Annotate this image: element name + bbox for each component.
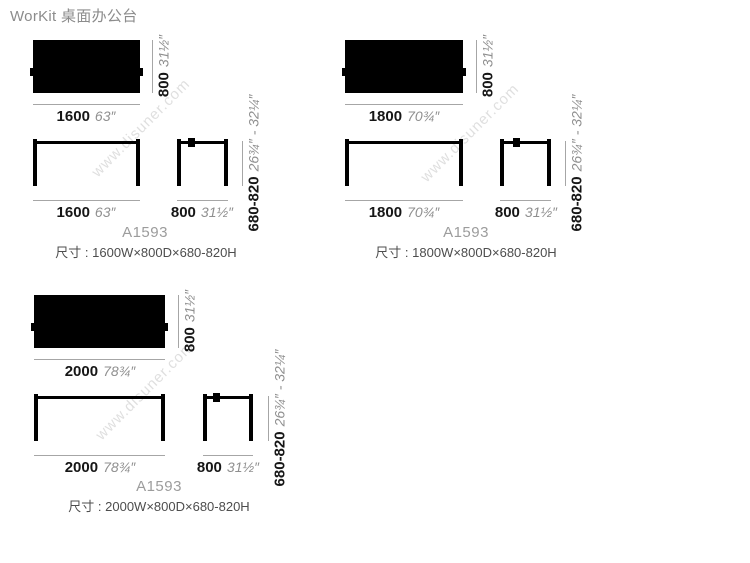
front-view-leg-right — [161, 394, 165, 441]
width-dim-line — [33, 104, 140, 105]
side-depth-dim-line — [500, 200, 551, 201]
height-mm: 680-820 — [246, 176, 263, 231]
width-dim-line — [345, 104, 463, 105]
width-inch: 63″ — [95, 108, 116, 124]
depth-mm: 800 — [171, 204, 196, 221]
depth-inch: 31½″ — [480, 35, 496, 67]
top-view-notch-right — [463, 68, 466, 76]
height-mm: 680-820 — [569, 176, 586, 231]
front-width-dim-label: 180070¾″ — [369, 204, 440, 221]
front-width-dim-line — [33, 200, 140, 201]
width-inch: 78¾″ — [103, 363, 135, 379]
depth-dim-label: 80031½″ — [182, 290, 199, 352]
width-inch: 70¾″ — [407, 204, 439, 220]
depth-mm: 800 — [197, 459, 222, 476]
height-dim-label: 680-82026¾″ - 32¼″ — [569, 95, 586, 232]
side-view-leg-right — [224, 139, 228, 186]
side-view-tabletop — [500, 141, 551, 144]
depth-inch: 31½″ — [227, 459, 259, 475]
width-inch: 78¾″ — [103, 459, 135, 475]
depth-inch: 31½″ — [201, 204, 233, 220]
front-view-leg-left — [345, 139, 349, 186]
width-mm: 1600 — [57, 108, 90, 125]
depth-dim-line — [476, 40, 477, 93]
side-view-tabletop — [177, 141, 228, 144]
width-mm: 1800 — [369, 108, 402, 125]
front-view-tabletop — [34, 396, 165, 399]
top-view-notch-left — [342, 68, 345, 76]
spec-sheet: WorKit 桌面办公台 www.disuner.com www.disuner… — [0, 0, 750, 563]
width-dim-label: 180070¾″ — [369, 108, 440, 125]
side-view-clamp — [188, 138, 195, 147]
front-view-leg-right — [136, 139, 140, 186]
height-inch: 26¾″ - 32¼″ — [246, 95, 262, 172]
table-top-view — [33, 40, 140, 93]
depth-dim-label: 80031½″ — [480, 35, 497, 97]
width-dim-label: 200078¾″ — [65, 363, 136, 380]
side-depth-dim-label: 80031½″ — [495, 204, 557, 221]
side-view-leg-right — [249, 394, 253, 441]
top-view-notch-right — [165, 323, 168, 331]
table-top-view — [345, 40, 463, 93]
depth-inch: 31½″ — [525, 204, 557, 220]
watermark: www.disuner.com — [92, 338, 197, 443]
width-mm: 1800 — [369, 204, 402, 221]
side-view-tabletop — [203, 396, 253, 399]
depth-mm: 800 — [480, 72, 497, 97]
width-dim-line — [34, 359, 165, 360]
front-width-dim-label: 160063″ — [57, 204, 116, 221]
height-dim-label: 680-82026¾″ - 32¼″ — [272, 350, 289, 487]
front-view-tabletop — [33, 141, 140, 144]
depth-dim-label: 80031½″ — [156, 35, 173, 97]
side-depth-dim-label: 80031½″ — [197, 459, 259, 476]
watermark: www.disuner.com — [417, 80, 522, 185]
width-mm: 2000 — [65, 459, 98, 476]
height-dim-line — [242, 141, 243, 186]
height-inch: 26¾″ - 32¼″ — [272, 350, 288, 427]
side-depth-dim-line — [177, 200, 228, 201]
side-view-clamp — [213, 393, 220, 402]
depth-mm: 800 — [182, 327, 199, 352]
side-depth-dim-line — [203, 455, 253, 456]
model-number: A1593 — [122, 224, 168, 241]
width-inch: 70¾″ — [407, 108, 439, 124]
depth-mm: 800 — [495, 204, 520, 221]
height-inch: 26¾″ - 32¼″ — [569, 95, 585, 172]
front-view-leg-left — [33, 139, 37, 186]
side-view-clamp — [513, 138, 520, 147]
side-view-leg-left — [177, 139, 181, 186]
side-depth-dim-label: 80031½″ — [171, 204, 233, 221]
depth-inch: 31½″ — [182, 290, 198, 322]
top-view-notch-right — [140, 68, 143, 76]
size-spec: 尺寸 : 2000W×800D×680-820H — [68, 496, 249, 515]
table-top-view — [34, 295, 165, 348]
height-dim-line — [268, 396, 269, 441]
front-view-leg-right — [459, 139, 463, 186]
front-width-dim-line — [345, 200, 463, 201]
width-mm: 2000 — [65, 363, 98, 380]
size-spec: 尺寸 : 1600W×800D×680-820H — [55, 242, 236, 261]
top-view-notch-left — [31, 323, 34, 331]
height-dim-line — [565, 141, 566, 186]
model-number: A1593 — [136, 478, 182, 495]
width-mm: 1600 — [57, 204, 90, 221]
side-view-leg-left — [203, 394, 207, 441]
width-inch: 63″ — [95, 204, 116, 220]
size-spec: 尺寸 : 1800W×800D×680-820H — [375, 242, 556, 261]
height-mm: 680-820 — [272, 431, 289, 486]
depth-dim-line — [152, 40, 153, 93]
side-view-leg-left — [500, 139, 504, 186]
width-dim-label: 160063″ — [57, 108, 116, 125]
front-view-leg-left — [34, 394, 38, 441]
page-title: WorKit 桌面办公台 — [10, 5, 138, 26]
depth-mm: 800 — [156, 72, 173, 97]
height-dim-label: 680-82026¾″ - 32¼″ — [246, 95, 263, 232]
front-width-dim-line — [34, 455, 165, 456]
front-width-dim-label: 200078¾″ — [65, 459, 136, 476]
side-view-leg-right — [547, 139, 551, 186]
top-view-notch-left — [30, 68, 33, 76]
model-number: A1593 — [443, 224, 489, 241]
front-view-tabletop — [345, 141, 463, 144]
depth-dim-line — [178, 295, 179, 348]
depth-inch: 31½″ — [156, 35, 172, 67]
